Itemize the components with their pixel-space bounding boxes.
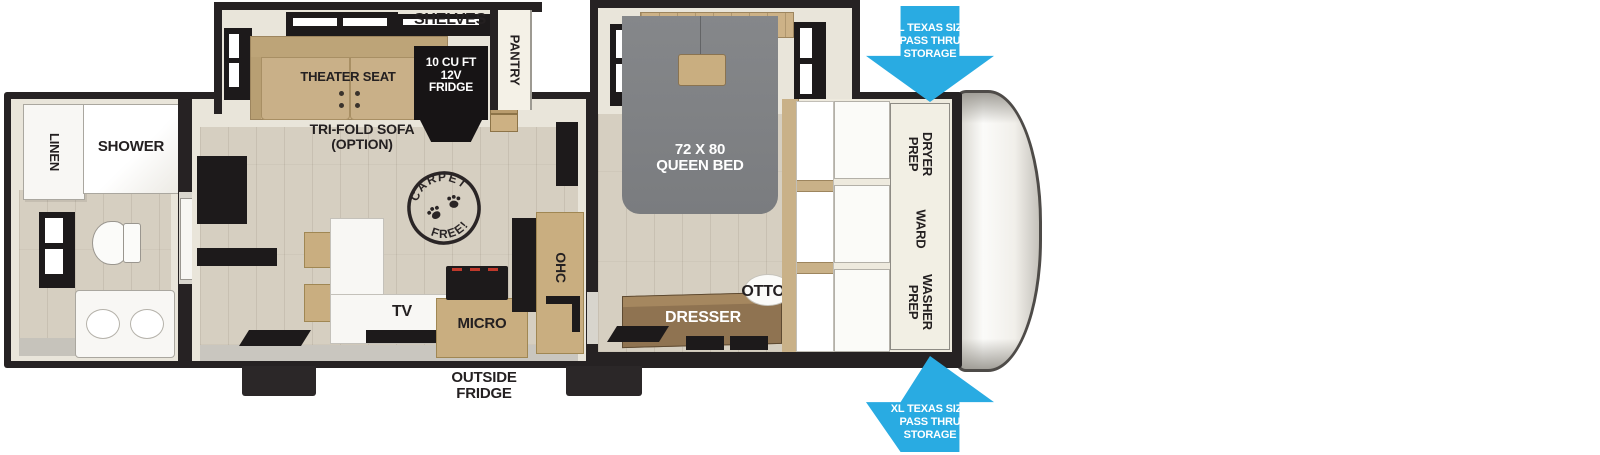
tv-label: TV (376, 304, 428, 321)
bedroom-window-icon (794, 22, 826, 108)
bathroom-window-icon (39, 212, 75, 288)
fridge-label: 10 CU FT 12V FRIDGE (414, 56, 488, 94)
entry-step-mat (239, 330, 311, 346)
pantry: PANTRY (498, 10, 532, 110)
washer-prep-label: WASHER PREP (906, 275, 934, 331)
linen-label: LINEN (47, 133, 61, 171)
pass-thru-storage-label: XL TEXAS SIZE PASS THRU STORAGE (866, 403, 994, 442)
fridge: 10 CU FT 12V FRIDGE (414, 46, 488, 120)
entry-step (242, 366, 316, 396)
cooktop-knobs (452, 268, 462, 271)
sink-right (130, 309, 164, 339)
overhead-cabinet: OHC (536, 212, 584, 354)
rv-floorplan-diagram: LINEN SHOWER TV MICRO (0, 0, 1600, 455)
linen-cabinet: LINEN (23, 104, 85, 200)
bed-pillow (678, 54, 726, 86)
bed-slide-rail (686, 336, 724, 350)
cooktop-knobs (488, 268, 498, 271)
shower-label: SHOWER (84, 139, 178, 155)
pass-thru-arrow-down: XL TEXAS SIZE PASS THRU STORAGE (866, 6, 994, 102)
wardrobe-drawer (834, 185, 890, 263)
shelves-label: SHELVES (400, 12, 500, 29)
fireplace (197, 156, 247, 224)
wardrobe-drawer (834, 269, 890, 352)
dresser-label: DRESSER (648, 310, 758, 327)
ohc-label: OHC (552, 253, 567, 284)
tv (366, 330, 442, 343)
micro-label: MICRO (444, 316, 520, 332)
cooktop-knobs (470, 268, 480, 271)
toilet-tank (123, 223, 141, 263)
front-cap (956, 90, 1042, 372)
media-shelf (197, 248, 277, 266)
front-wardrobe: DRYER PREP WARD WASHER PREP (782, 99, 952, 352)
trifold-sofa-label: TRI-FOLD SOFA (OPTION) (280, 122, 444, 152)
shelf-box (490, 114, 518, 132)
paw-print-icon (426, 204, 444, 222)
theater-seat-label: THEATER SEAT (262, 70, 434, 84)
bedroom-step-mat (607, 326, 669, 342)
wardrobe-drawer (834, 101, 890, 179)
paw-print-icon (447, 195, 460, 208)
queen-bed: 72 X 80 QUEEN BED (622, 16, 778, 214)
slideout-side-window-icon (224, 28, 252, 100)
pantry-label: PANTRY (507, 35, 521, 86)
bed-slide-rail (730, 336, 768, 350)
sink-left (86, 309, 120, 339)
queen-bed-label: 72 X 80 QUEEN BED (630, 142, 770, 174)
tall-cabinet (556, 122, 578, 186)
vanity-counter (75, 290, 175, 358)
outside-fridge-label: OUTSIDE FRIDGE (430, 370, 538, 402)
cooktop (446, 266, 508, 300)
dryer-prep-label: DRYER PREP (906, 132, 934, 176)
pass-thru-storage-label: XL TEXAS SIZE PASS THRU STORAGE (866, 22, 994, 61)
laundry-prep-panel: DRYER PREP WARD WASHER PREP (890, 103, 950, 350)
pantry-wall (490, 8, 498, 110)
kitchen-window (512, 218, 536, 312)
wardrobe-shelves (796, 101, 834, 352)
ward-label: WARD (913, 210, 927, 249)
entry-step (566, 366, 642, 396)
entry-door-frame (572, 296, 580, 332)
shower: SHOWER (83, 104, 179, 194)
slideout-window-icon (286, 12, 398, 38)
